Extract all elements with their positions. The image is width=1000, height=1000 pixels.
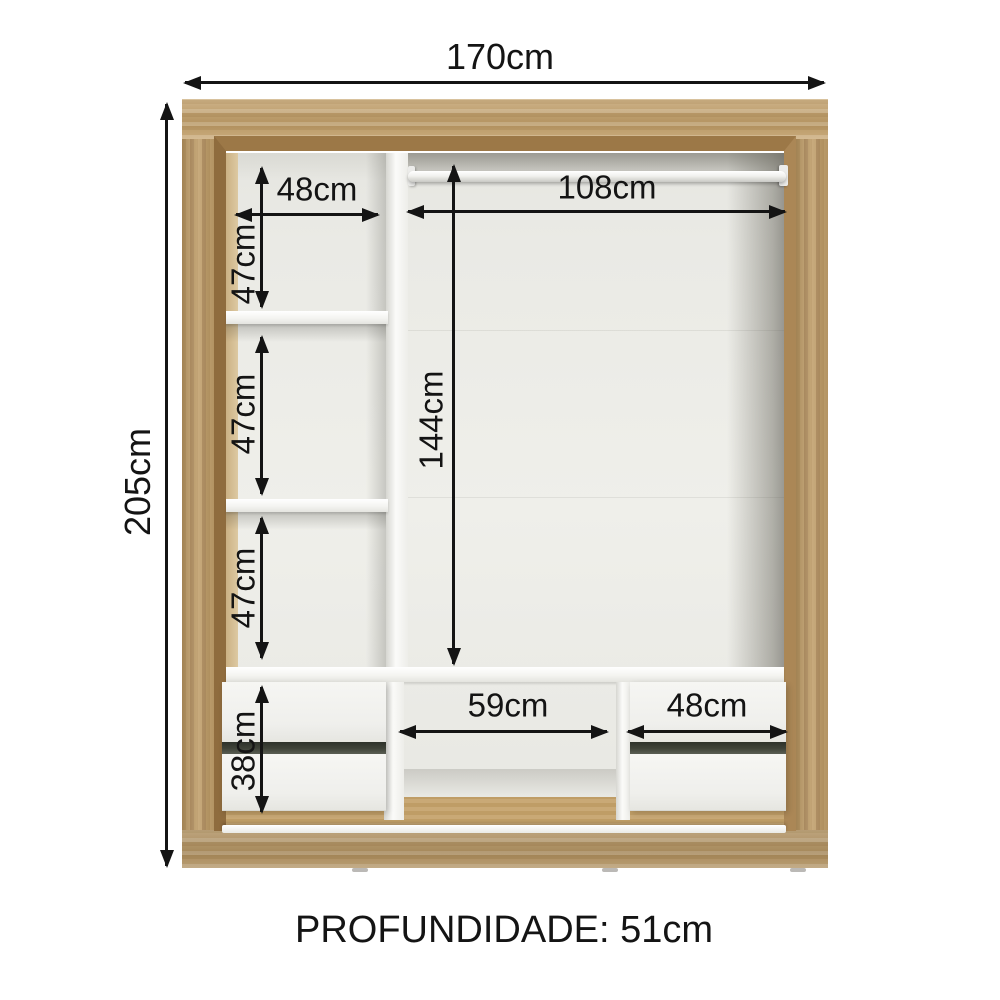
dim-label-drawer-height: 38cm xyxy=(227,711,260,792)
shelf-shadow xyxy=(226,512,386,530)
dim-arrow-rod-height xyxy=(452,166,455,664)
dim-label-section1-height: 47cm xyxy=(227,224,260,305)
depth-label: PROFUNDIDADE: 51cm xyxy=(295,911,713,949)
dim-label-total-height: 205cm xyxy=(120,428,156,536)
dim-label-bottom-middle-width: 59cm xyxy=(468,689,549,722)
drawer-gap xyxy=(630,742,786,754)
bottom-divider-left xyxy=(384,682,404,820)
dim-label-bottom-right-width: 48cm xyxy=(667,689,748,722)
center-divider-panel xyxy=(386,153,408,667)
drawer xyxy=(630,754,786,811)
bottom-divider-right xyxy=(616,682,630,820)
shelf-2 xyxy=(226,499,388,512)
wardrobe-dimension-diagram: 170cm 205cm 48cm 47cm 47cm 47cm 108cm 14… xyxy=(0,0,1000,1000)
kick-strip xyxy=(222,825,786,833)
frame-bottom-panel xyxy=(182,830,828,868)
dim-label-total-width: 170cm xyxy=(446,39,554,75)
foot-shadow xyxy=(602,868,618,872)
frame-left-panel xyxy=(182,99,214,868)
frame-right-panel xyxy=(796,99,828,868)
foot-shadow xyxy=(790,868,806,872)
dim-arrow-rod-width xyxy=(408,210,785,213)
dim-label-rod-height: 144cm xyxy=(415,370,448,469)
dim-arrow-total-width xyxy=(185,81,824,84)
divider-shadow xyxy=(366,153,386,667)
back-panel-seam xyxy=(408,497,784,498)
dim-arrow-left-top-width xyxy=(236,213,378,216)
dim-label-left-top-width: 48cm xyxy=(277,173,358,206)
shelf-shadow xyxy=(226,324,386,342)
frame-top-panel xyxy=(182,99,828,139)
shelf-1 xyxy=(226,311,388,324)
dim-arrow-bottom-right-width xyxy=(628,730,786,733)
back-panel-seam xyxy=(408,330,784,331)
bottom-shelf xyxy=(226,667,784,682)
dim-label-section3-height: 47cm xyxy=(227,548,260,629)
foot-shadow xyxy=(352,868,368,872)
dim-arrow-bottom-middle-width xyxy=(400,730,607,733)
dim-label-section2-height: 47cm xyxy=(227,374,260,455)
dim-label-rod-width: 108cm xyxy=(557,171,656,204)
bottom-middle-shadow xyxy=(404,769,616,796)
dim-arrow-total-height xyxy=(165,104,168,866)
